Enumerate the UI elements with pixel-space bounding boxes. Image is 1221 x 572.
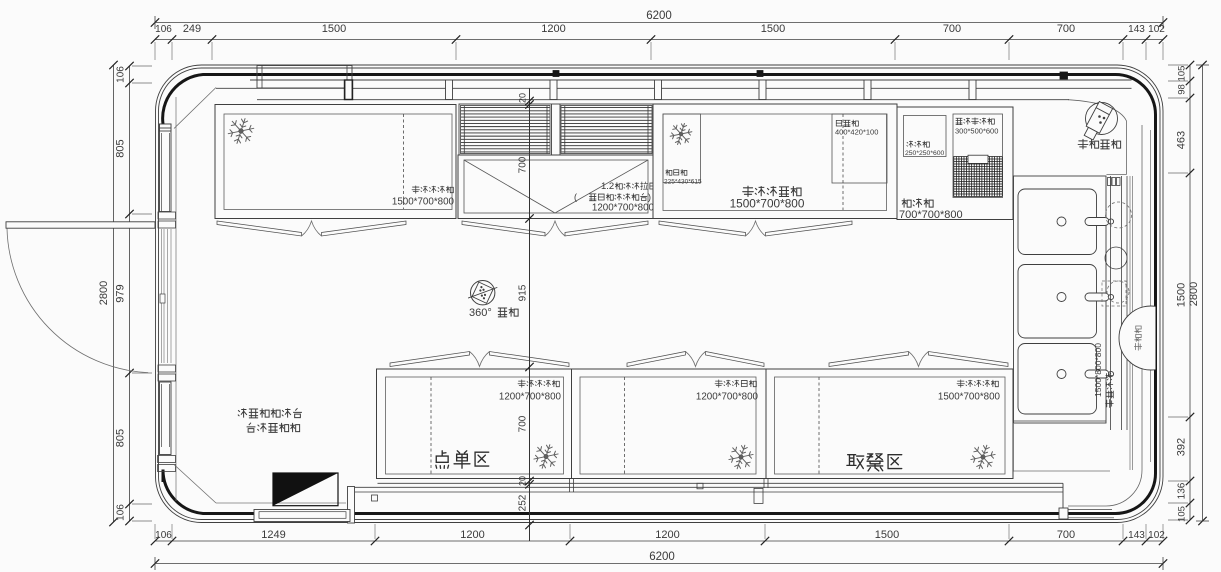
svg-text:463: 463 <box>1176 131 1188 149</box>
svg-text:): ) <box>648 192 651 202</box>
svg-text:20: 20 <box>518 476 528 486</box>
svg-text:1.2: 1.2 <box>601 181 614 192</box>
svg-text:20: 20 <box>518 93 528 103</box>
svg-text:1500: 1500 <box>761 23 785 35</box>
svg-text:1249: 1249 <box>261 529 285 541</box>
svg-text:2800: 2800 <box>98 281 110 305</box>
svg-text:1200: 1200 <box>460 529 484 541</box>
svg-text:915: 915 <box>518 284 529 301</box>
svg-text:1200*700*800: 1200*700*800 <box>499 392 562 403</box>
svg-text:700: 700 <box>1057 23 1075 35</box>
svg-text:6200: 6200 <box>646 10 672 22</box>
svg-text:300*500*600: 300*500*600 <box>955 127 998 136</box>
svg-text:400*420*100: 400*420*100 <box>835 128 878 137</box>
svg-text:(: ( <box>574 192 577 202</box>
svg-text:1500: 1500 <box>322 23 346 35</box>
svg-text:392: 392 <box>1176 438 1188 456</box>
svg-text:1500*700*800: 1500*700*800 <box>938 392 1001 403</box>
svg-text:1200*700*800: 1200*700*800 <box>696 392 759 403</box>
svg-text:102: 102 <box>1148 24 1165 35</box>
svg-text:225*430*615: 225*430*615 <box>664 179 702 186</box>
svg-text:250*250*600: 250*250*600 <box>905 150 945 157</box>
svg-text:700*700*800: 700*700*800 <box>899 209 963 221</box>
svg-text:360°: 360° <box>469 307 492 319</box>
svg-text:700: 700 <box>518 156 529 173</box>
svg-text:252: 252 <box>518 494 529 511</box>
svg-text:136: 136 <box>1177 482 1188 499</box>
svg-text:6200: 6200 <box>649 551 675 563</box>
svg-text:106: 106 <box>116 66 127 83</box>
svg-text:2800: 2800 <box>1188 282 1200 306</box>
svg-text:拉: 拉 <box>640 181 649 191</box>
svg-text:106: 106 <box>116 504 127 521</box>
svg-text:1500*800*800: 1500*800*800 <box>1093 343 1103 397</box>
svg-text:700: 700 <box>518 415 529 432</box>
svg-text:1200: 1200 <box>655 529 679 541</box>
svg-text:98: 98 <box>1177 84 1188 95</box>
svg-text:1500: 1500 <box>1176 283 1188 307</box>
svg-text:143: 143 <box>1128 24 1145 35</box>
svg-text:979: 979 <box>115 284 127 302</box>
svg-text:1200*700*800: 1200*700*800 <box>592 203 655 214</box>
svg-text:1200: 1200 <box>541 23 565 35</box>
svg-text:102: 102 <box>1148 530 1165 541</box>
svg-text:1500*700*800: 1500*700*800 <box>730 197 805 211</box>
svg-text:143: 143 <box>1128 530 1145 541</box>
svg-text:1500*700*800: 1500*700*800 <box>392 197 455 208</box>
svg-text:249: 249 <box>183 23 201 35</box>
svg-text:106: 106 <box>155 24 172 35</box>
svg-text:700: 700 <box>1057 529 1075 541</box>
svg-text:1500: 1500 <box>875 529 899 541</box>
svg-text:805: 805 <box>115 429 127 447</box>
svg-text:105: 105 <box>1177 66 1188 82</box>
svg-text:106: 106 <box>155 530 172 541</box>
svg-text:700: 700 <box>943 23 961 35</box>
svg-text:105: 105 <box>1177 506 1188 522</box>
svg-text:805: 805 <box>115 139 127 157</box>
